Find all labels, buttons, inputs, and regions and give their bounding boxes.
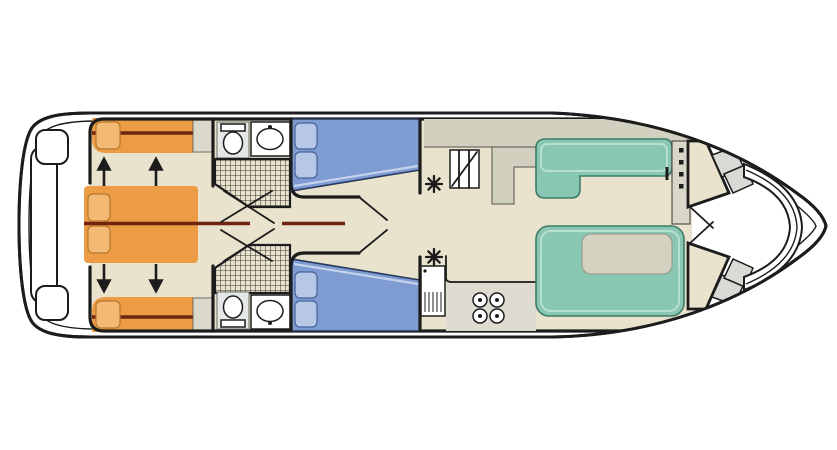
toilet-icon <box>224 296 243 318</box>
vent-icon <box>426 176 442 192</box>
salon-table <box>582 234 672 274</box>
aft-shelf-top <box>193 120 212 152</box>
pillow <box>295 123 317 149</box>
toilet-tank-icon <box>221 320 245 327</box>
boat-floor-plan <box>0 0 837 450</box>
refrigerator-icon <box>421 266 445 316</box>
pillow <box>295 301 317 327</box>
toilet-tank-icon <box>221 124 245 131</box>
pillow <box>295 272 317 298</box>
toilet-icon <box>224 132 243 154</box>
salon <box>536 139 684 316</box>
floor-plan-svg <box>0 0 837 450</box>
tap-icon <box>268 125 272 129</box>
pillow <box>295 152 317 178</box>
pillow <box>96 122 120 149</box>
pillow <box>88 194 110 221</box>
companionway-stairs <box>450 150 479 188</box>
worktop-counter-bottom <box>446 282 536 331</box>
stern-locker-top <box>36 130 68 164</box>
pillow <box>96 301 120 328</box>
pillow <box>88 226 110 253</box>
stern-locker-bottom <box>36 286 68 320</box>
aft-shelf-bottom <box>193 298 212 330</box>
vent-icon <box>426 249 442 265</box>
tap-icon <box>268 321 272 325</box>
stern-bench <box>31 146 57 304</box>
washbasin-icon <box>257 301 283 322</box>
washbasin-icon <box>257 129 283 150</box>
